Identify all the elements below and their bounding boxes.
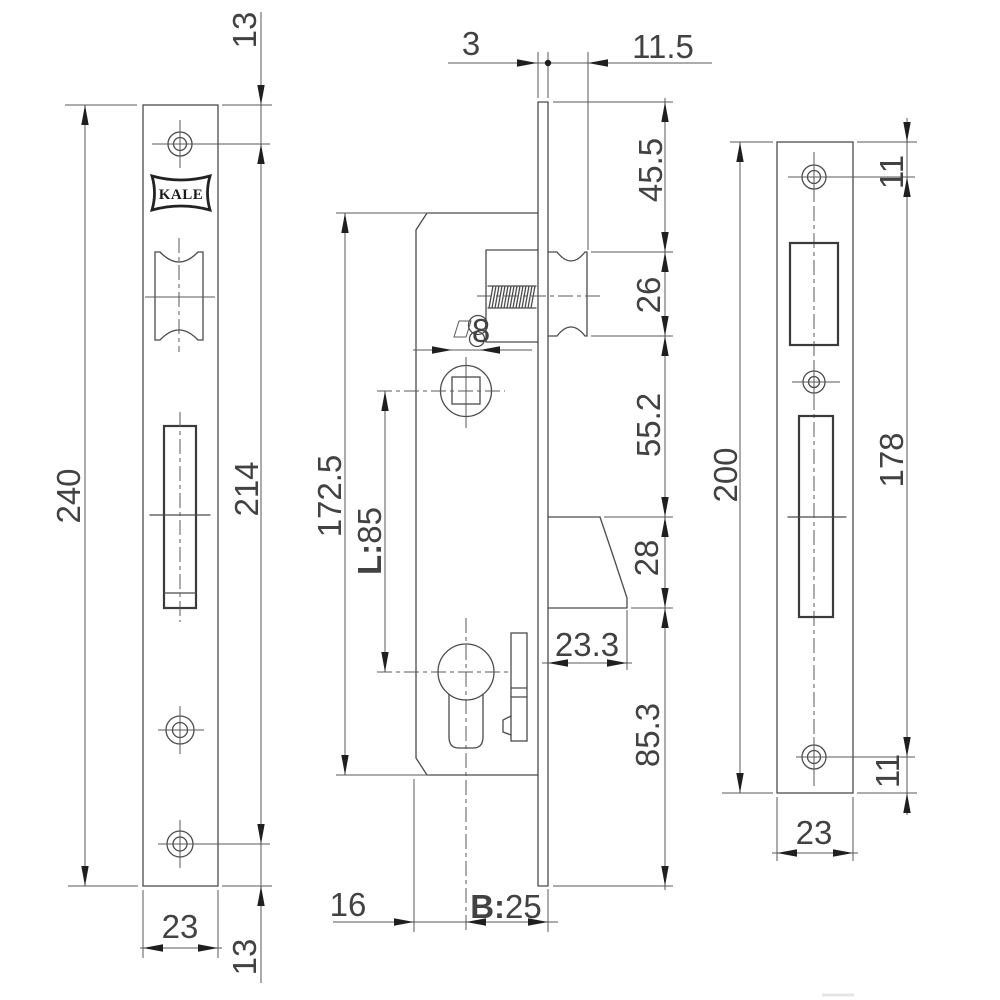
dim-top-to-roller: 45.5 [632,138,669,202]
roller-bolt-side [548,252,587,336]
dim-strike-overall-height: 200 [707,447,744,502]
screw-hole-middle [158,706,204,754]
dim-strike-hole-spacing: 178 [873,432,910,487]
dim-centre-distance: L:85 [351,507,388,575]
dim-front-bottom-offset: 13 [226,939,263,976]
lock-case-outline [416,213,538,775]
dim-strike-top-offset: 11 [873,155,910,189]
dim-roller-projection: 11.5 [632,28,694,65]
dim-front-overall-height: 240 [50,468,87,523]
screw-hole-bottom [158,820,270,868]
bolt-keep-cutout [788,416,846,617]
deadbolt-side [548,517,627,608]
kale-logo-text: KALE [159,187,204,203]
lock-technical-drawing: KALE 240 [0,0,1000,1000]
dim-front-hole-spacing: 214 [228,461,265,516]
dim-strike-bottom-offset: 11 [869,754,906,788]
dim-front-top-offset: 13 [226,12,263,49]
dim-front-width: 23 [162,908,199,945]
dim-roller-to-bolt: 55.2 [630,393,667,457]
front-plate-dimensions: 240 13 214 13 23 [50,12,272,983]
dim-bolt-to-bottom: 85.3 [629,703,666,767]
dim-case-to-centre: 16 [330,886,367,923]
faceplate-edge [538,102,548,886]
roller-bolt-front [145,238,215,352]
screw-hole-top [152,120,270,168]
strike-screw-hole-middle [792,362,840,402]
dim-spindle-size: 8 [472,312,490,349]
kale-logo: KALE [152,176,210,210]
dim-case-height: 172.5 [311,455,348,538]
locking-cam-bar [503,633,527,741]
lock-case-dimensions: 3 11.5 45.5 26 55.2 28 85.3 8 23.3 [311,25,712,932]
dim-bolt-height: 28 [628,540,665,577]
spindle-follower [377,357,505,428]
dim-bolt-throw: 23.3 [555,626,619,663]
dim-roller-height: 26 [630,277,667,314]
strike-plate-outline [777,142,853,793]
strike-plate-dimensions: 200 11 178 11 23 [707,118,917,861]
dim-backset: B:25 [470,888,542,925]
euro-cylinder-hole [377,618,508,930]
dim-strike-width: 23 [796,814,833,851]
deadbolt-slot-front [150,412,210,622]
dim-plate-thickness: 3 [462,25,480,62]
